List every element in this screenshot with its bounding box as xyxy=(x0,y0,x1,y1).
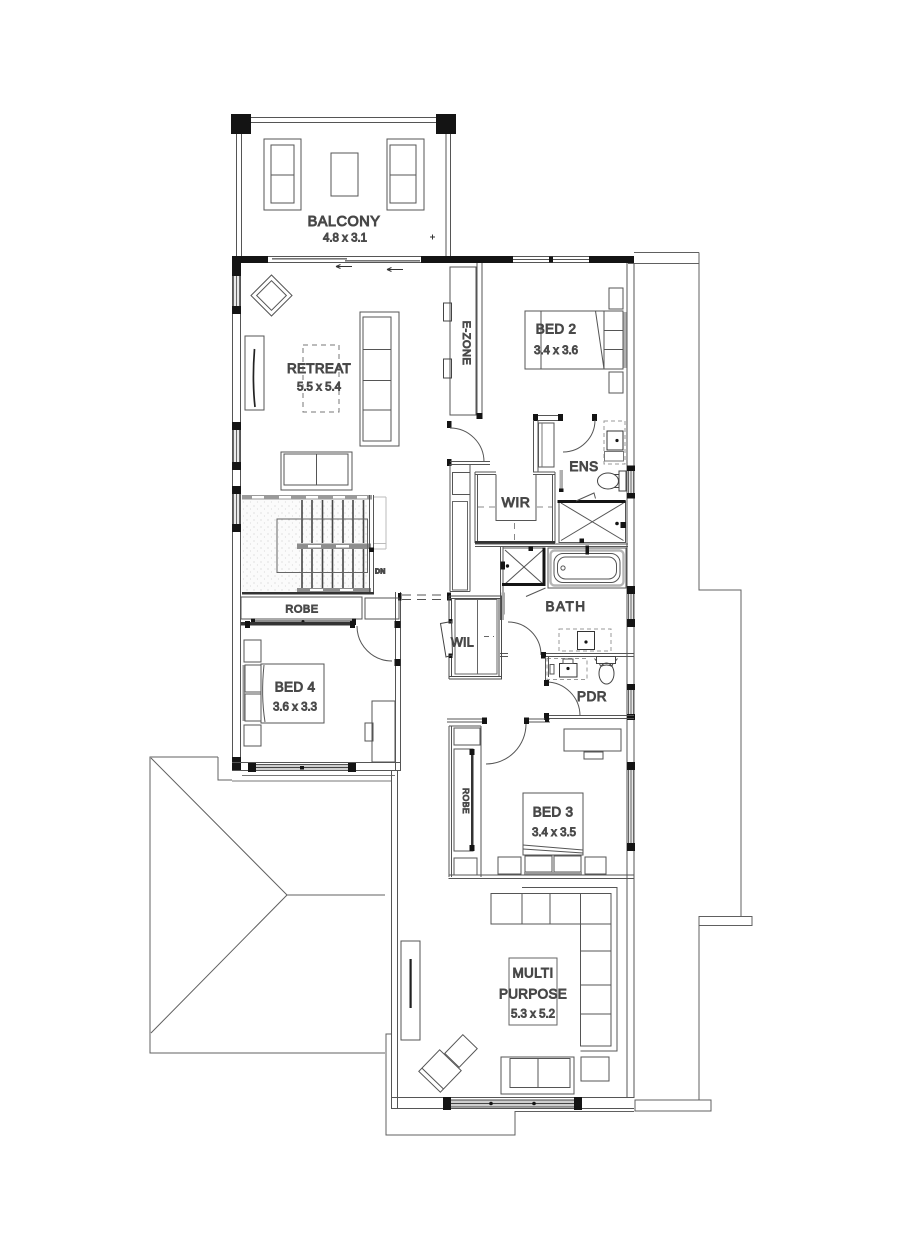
svg-text:WIR: WIR xyxy=(502,494,531,510)
svg-text:DN: DN xyxy=(375,569,386,576)
svg-text:BATH: BATH xyxy=(545,599,586,614)
svg-text:ENS: ENS xyxy=(569,459,598,474)
svg-text:4.8 x 3.1: 4.8 x 3.1 xyxy=(323,233,367,245)
svg-text:BALCONY: BALCONY xyxy=(308,214,381,230)
svg-text:E-ZONE: E-ZONE xyxy=(460,321,472,366)
svg-text:MULTI: MULTI xyxy=(513,966,554,981)
svg-text:ROBE: ROBE xyxy=(285,604,318,616)
svg-text:3.4 x 3.6: 3.4 x 3.6 xyxy=(534,345,578,357)
svg-text:ROBE: ROBE xyxy=(461,788,471,814)
svg-text:PDR: PDR xyxy=(577,689,607,704)
svg-text:5.3 x 5.2: 5.3 x 5.2 xyxy=(511,1009,555,1021)
svg-text:BED 4: BED 4 xyxy=(275,680,316,695)
svg-text:BED 3: BED 3 xyxy=(533,805,574,820)
svg-text:PURPOSE: PURPOSE xyxy=(499,987,567,1002)
svg-text:3.4 x 3.5: 3.4 x 3.5 xyxy=(532,827,576,839)
svg-text:WIL: WIL xyxy=(451,636,474,650)
svg-text:3.6 x 3.3: 3.6 x 3.3 xyxy=(273,702,317,714)
svg-text:5.5 x 5.4: 5.5 x 5.4 xyxy=(297,382,342,394)
svg-text:RETREAT: RETREAT xyxy=(287,361,351,376)
svg-text:BED 2: BED 2 xyxy=(536,322,577,337)
